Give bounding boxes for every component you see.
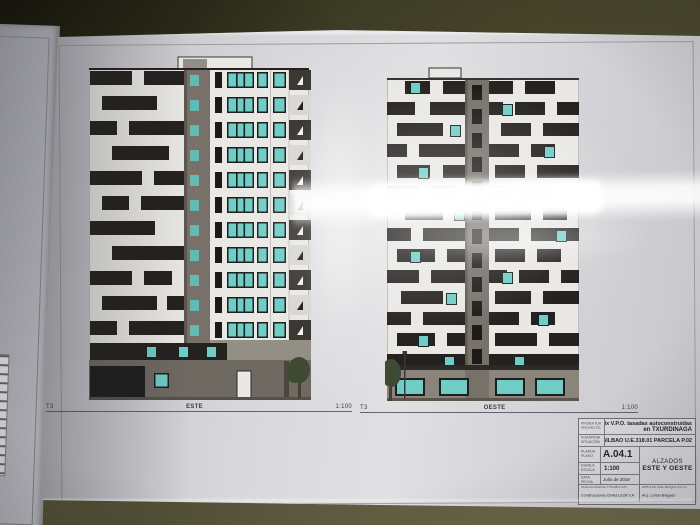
architect-value: Arq.: Loreto Bragado — [642, 494, 674, 498]
developer-value: Construcciones Civiles LEZA S.A — [581, 494, 616, 498]
plan-label-es: PLANO — [581, 455, 595, 459]
sheet-top-edge-highlight — [58, 31, 700, 34]
photo-architectural-sheet: T3 ESTE 1:100 T3 OESTE 1:100 PROIEKTUA P… — [0, 0, 700, 525]
architect-label-eu: ARKITEKTOA — [642, 486, 663, 489]
oeste-scale: 1:100 — [621, 405, 638, 411]
project-label-cell: PROIEKTUA PROYECTO — [579, 419, 605, 434]
main-sheet: T3 ESTE 1:100 T3 OESTE 1:100 PROIEKTUA P… — [0, 0, 700, 525]
title-block-location-row: KOKAPENA SITUACIÓN BILBAO U.E.318.01 PAR… — [579, 435, 695, 447]
oeste-section-marker: T3 — [360, 405, 368, 411]
location-label-cell: KOKAPENA SITUACIÓN — [579, 435, 605, 446]
oeste-title: OESTE — [484, 405, 506, 411]
project-value-cell: 4x V.P.O. tasadas autoconstruidas en TXU… — [605, 419, 695, 434]
date-label-es: FECHA — [581, 480, 593, 484]
developer-label-es: PROMOTOR — [607, 486, 626, 489]
architect-label-es: ARQUITECTO — [665, 486, 687, 489]
date-label-eu: DATA — [581, 476, 593, 480]
developer-label-eu: SUSTATZAILEA — [581, 486, 605, 489]
plan-number: A.04.1 — [603, 449, 632, 460]
project-value-line2: en TXURDINAGA — [643, 427, 692, 433]
title-block-middle: PLANOA PLANO A.04.1 ESKALA — [579, 447, 695, 485]
este-scale: 1:100 — [335, 404, 352, 410]
sheet-title-line2: ESTE Y OESTE — [642, 465, 692, 472]
sheet-left-shadow — [40, 30, 190, 508]
location-value: BILBAO U.E.318.01 PARCELA P.02 — [605, 438, 692, 444]
scale-value: 1:100 — [604, 466, 619, 472]
plan-scale-date-column: PLANOA PLANO A.04.1 ESKALA — [579, 447, 640, 484]
sheet-bottom-edge-highlight — [42, 499, 692, 502]
location-label-es: SITUACIÓN — [581, 441, 600, 445]
location-value-cell: BILBAO U.E.318.01 PARCELA P.02 — [605, 435, 695, 446]
title-block: PROIEKTUA PROYECTO 4x V.P.O. tasadas aut… — [578, 418, 696, 505]
sheet-title-cell: ALZADOS ESTE Y OESTE — [640, 447, 695, 484]
project-label-es: PROYECTO — [581, 427, 601, 431]
oeste-drawing-label: T3 OESTE 1:100 — [360, 405, 638, 413]
sheet-content: T3 ESTE 1:100 T3 OESTE 1:100 PROIEKTUA P… — [0, 0, 700, 525]
scale-label-es: ESCALA — [581, 469, 595, 473]
title-block-project-row: PROIEKTUA PROYECTO 4x V.P.O. tasadas aut… — [579, 419, 695, 435]
date-value: Julio de 2018 — [603, 478, 630, 483]
elevation-oeste-drawing — [385, 67, 581, 401]
